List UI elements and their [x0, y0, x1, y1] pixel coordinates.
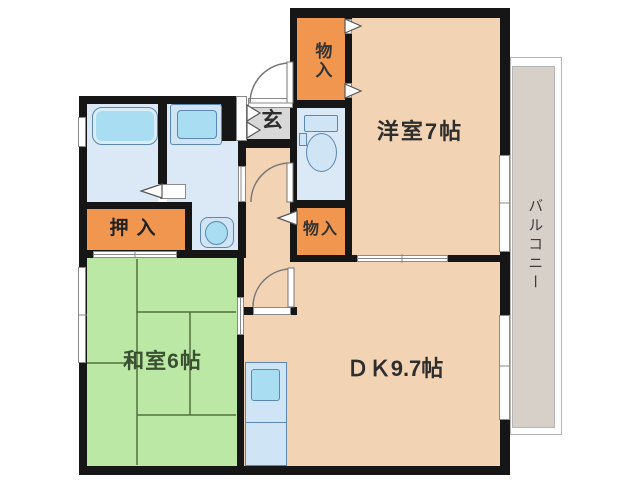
oshiire-label: 押入 [88, 219, 185, 240]
kitchen-counter-divider [245, 422, 287, 423]
washroom-sliding-door [238, 166, 246, 202]
wall-bath-divider [158, 96, 167, 184]
western-dk-sliding-door [357, 255, 448, 262]
wall-right-1 [500, 8, 510, 155]
wall-oshiire-top [79, 202, 192, 209]
dk-label: ＤＫ9.7帖 [320, 357, 470, 381]
entrance-door-sill [248, 98, 293, 108]
wall-storage-top-btm [297, 100, 345, 108]
hall-dk-door-gap [253, 307, 291, 315]
entrance-door-arc [250, 63, 290, 103]
dk-window [499, 315, 510, 420]
wall-toilet-btm [297, 200, 345, 208]
storage-top-door-gap-2 [345, 83, 352, 98]
tatami-dk-sliding-door [237, 297, 244, 335]
wall-closet-col-left [290, 18, 297, 255]
tatami-room-window [78, 267, 86, 363]
genkan-step-edge [243, 139, 297, 148]
western-room-window [499, 155, 510, 252]
oshiire-sliding-door [93, 251, 177, 258]
bathroom-door-panel [160, 184, 186, 199]
wall-storage-mid-btm [290, 255, 345, 262]
toilet-bowl [306, 133, 337, 172]
wall-tatami-right [237, 250, 244, 466]
bathroom-window [78, 117, 86, 147]
wall-top [290, 8, 510, 18]
balcony-label: バルコニー [522, 175, 546, 315]
storage-mid-label: 物入 [297, 221, 345, 239]
wall-entry-stub [221, 96, 236, 141]
kitchen-sink [251, 369, 280, 401]
toilet-handle [299, 133, 307, 146]
washing-machine [177, 110, 217, 139]
storage-top-label: 物入 [300, 28, 342, 94]
bathtub [92, 107, 158, 145]
genkan-label: 玄 [247, 109, 297, 132]
tatami-room-label: 和室6帖 [90, 350, 235, 373]
wall-bottom [79, 466, 510, 475]
shoe-cabinet [236, 96, 247, 141]
storage-top-door-gap-1 [345, 19, 352, 34]
floor-plan: 洋室7帖 ＤＫ9.7帖 和室6帖 バルコニー 玄 物入 物入 押入 [0, 0, 640, 480]
western-room-label: 洋室7帖 [345, 120, 495, 144]
toilet-tank [304, 115, 338, 132]
washbasin-bowl [205, 221, 228, 245]
